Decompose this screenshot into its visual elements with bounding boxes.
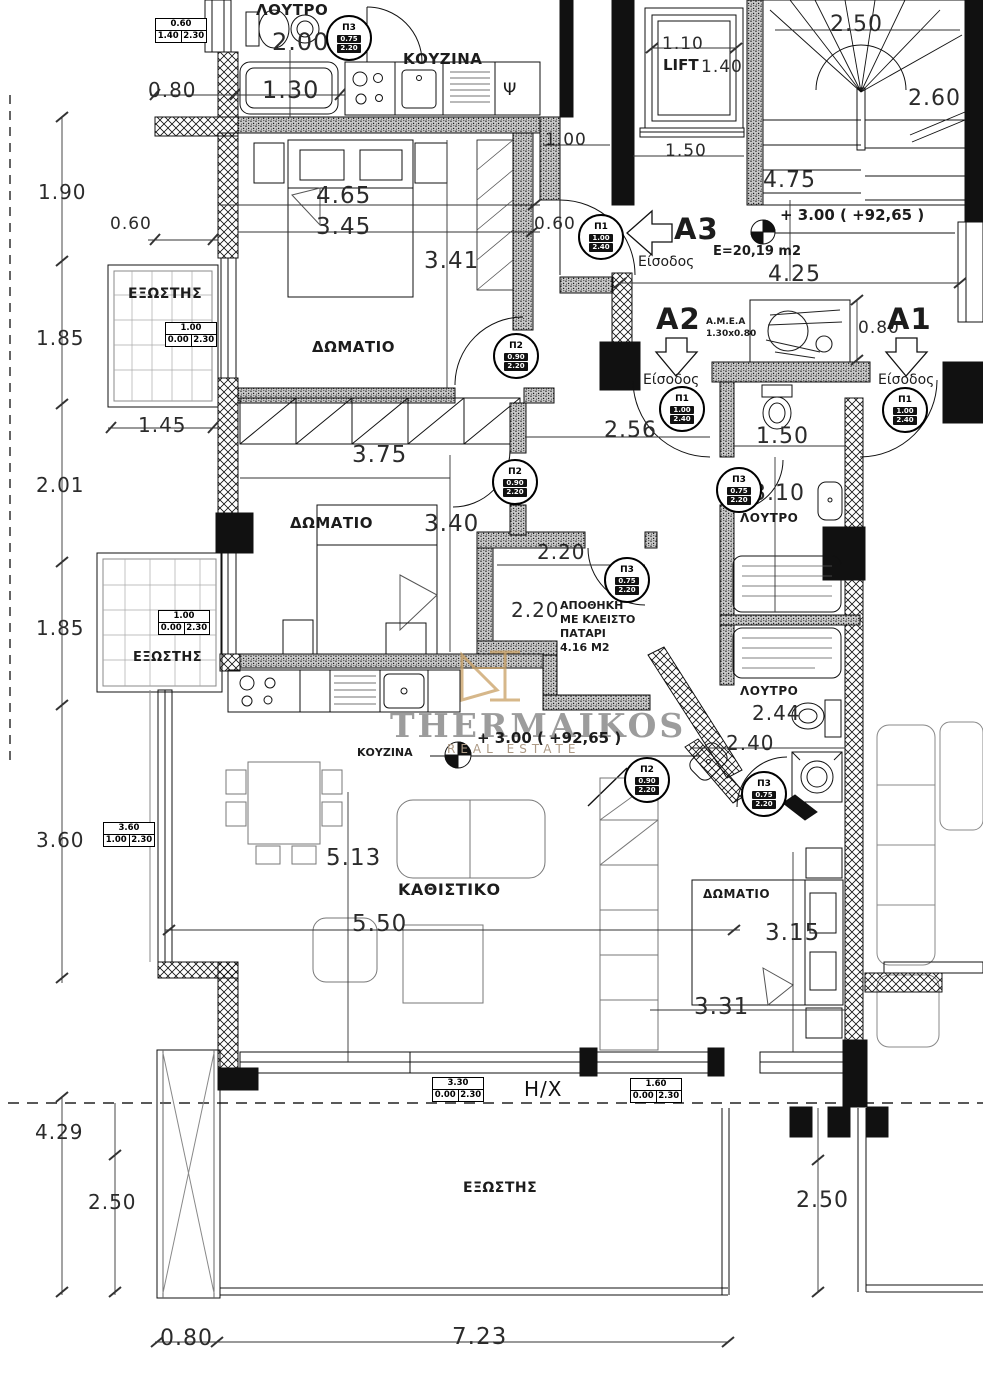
dim-r2-3-40: 3.40 xyxy=(424,511,479,537)
dim-bot-2-50: 2.50 xyxy=(796,1188,849,1213)
amea-label: Α.Μ.Ε.Α xyxy=(706,317,745,328)
door-tag-p1-a3: Π1 1.00 2.40 xyxy=(578,214,624,260)
window-box-living: 3.60 1.002.30 xyxy=(103,822,155,847)
dim-lift-1-50: 1.50 xyxy=(665,141,707,161)
dim-lift-1-40: 1.40 xyxy=(701,57,743,77)
dim-left-1-85a: 1.85 xyxy=(36,326,85,350)
dim-left-2-01: 2.01 xyxy=(36,473,85,497)
dim-bot-0-80: 0.80 xyxy=(160,1326,213,1351)
lift-label: LIFT xyxy=(663,56,699,74)
window-box-balcony-1: 1.00 0.002.30 xyxy=(165,322,217,347)
dim-r1-3-45: 3.45 xyxy=(316,214,371,240)
apartment-a3-label: A3 xyxy=(674,212,719,246)
dim-liv-5-50: 5.50 xyxy=(352,911,407,937)
dim-r1-4-65: 4.65 xyxy=(316,183,371,209)
dim-r1-0-60: 0.60 xyxy=(534,214,576,234)
balcony-2-label: ΕΞΩΣΤΗΣ xyxy=(133,650,202,665)
dim-hall-1-00: 1.00 xyxy=(545,130,587,150)
dim-balc-1-45: 1.45 xyxy=(138,413,187,437)
dim-bath-2-00: 2.00 xyxy=(272,28,329,56)
door-tag-p3-storage: Π3 0.75 2.20 xyxy=(604,557,650,603)
room-label-bath-a2: ΛΟΥΤΡΟ xyxy=(740,511,798,525)
door-tag-p3-bath-a2: Π3 0.75 2.20 xyxy=(716,467,762,513)
door-tag-p2-bedroom-3: Π2 0.90 2.20 xyxy=(624,757,670,803)
dim-r1-3-41: 3.41 xyxy=(424,248,479,274)
hx-label: Η/Χ xyxy=(524,1077,562,1101)
door-tag-p2-bedroom-2: Π2 0.90 2.20 xyxy=(492,459,538,505)
amea-size: 1.30x0.80 xyxy=(706,329,756,340)
dim-bath2-2-44: 2.44 xyxy=(752,701,801,725)
dim-r2-3-75: 3.75 xyxy=(352,442,407,468)
dim-left-2-50: 2.50 xyxy=(88,1190,137,1214)
room-label-bedroom-1: ΔΩΜΑΤΙΟ xyxy=(312,338,395,356)
window-box-bottom-2: 1.60 0.002.30 xyxy=(630,1078,682,1103)
window-box-balcony-2: 1.00 0.002.30 xyxy=(158,610,210,635)
dim-st-2-20a: 2.20 xyxy=(537,540,586,564)
dim-st-2-20b: 2.20 xyxy=(511,598,560,622)
dim-stairs-2-50: 2.50 xyxy=(830,12,883,37)
door-tag-p2-bedroom-1: Π2 0.90 2.20 xyxy=(493,333,539,379)
dim-br-3-31: 3.31 xyxy=(694,994,749,1020)
dim-left-3-60: 3.60 xyxy=(36,828,85,852)
dim-left-1-90: 1.90 xyxy=(38,180,87,204)
storage-label-2: ΜΕ ΚΛΕΙΣΤΟ xyxy=(560,613,635,627)
level-note-hall: + 3.00 ( +92,65 ) xyxy=(780,206,924,224)
balcony-3-label: ΕΞΩΣΤΗΣ xyxy=(463,1180,537,1196)
window-box-top: 0.60 1.402.30 xyxy=(155,18,207,43)
dim-top-0-80: 0.80 xyxy=(148,78,197,102)
dim-hall-4-25: 4.25 xyxy=(768,262,821,287)
dim-bath-1-30: 1.30 xyxy=(262,76,319,104)
apartment-a2-label: A2 xyxy=(656,302,701,336)
storage-area: 4.16 Μ2 xyxy=(560,641,610,655)
apartment-a3-area: E=20,19 m2 xyxy=(713,244,801,259)
floor-plan: ΛΟΥΤΡΟ 2.00 0.80 1.30 ΚΟΥΖΙΝΑ Ψ 1.00 1.1… xyxy=(0,0,983,1399)
apartment-a3-entrance: Είσοδος xyxy=(638,254,694,270)
dim-left-1-85b: 1.85 xyxy=(36,616,85,640)
dim-stairs-2-60: 2.60 xyxy=(908,86,961,111)
dim-br-3-15: 3.15 xyxy=(765,920,820,946)
psi-symbol: Ψ xyxy=(503,80,516,100)
balcony-1-label: ΕΞΩΣΤΗΣ xyxy=(128,286,202,302)
dim-bath-1-50: 1.50 xyxy=(756,424,809,449)
room-label-living: ΚΑΘΙΣΤΙΚΟ xyxy=(398,880,501,899)
door-tag-p3-bath-a1: Π3 0.75 2.20 xyxy=(741,771,787,817)
dim-liv-5-13: 5.13 xyxy=(326,845,381,871)
room-label-bedroom-3: ΔΩΜΑΤΙΟ xyxy=(703,887,770,901)
apartment-a2-entrance: Είσοδος xyxy=(643,372,699,388)
apartment-a1-entrance: Είσοδος xyxy=(878,372,934,388)
room-label-bath-a1: ΛΟΥΤΡΟ xyxy=(740,684,798,698)
storage-label-1: ΑΠΟΘΗΚΗ xyxy=(560,599,623,613)
dim-bot-7-23: 7.23 xyxy=(452,1324,507,1350)
door-tag-p1-a1: Π1 1.00 2.40 xyxy=(882,387,928,433)
door-tag-p3-bath-top: Π3 0.75 2.20 xyxy=(326,15,372,61)
window-box-bottom-1: 3.30 0.002.30 xyxy=(432,1077,484,1102)
storage-label-3: ΠΑΤΑΡΙ xyxy=(560,627,606,641)
dim-left-0-60: 0.60 xyxy=(110,214,152,234)
door-tag-p1-a2: Π1 1.00 2.40 xyxy=(659,386,705,432)
apartment-a1-label: A1 xyxy=(887,302,932,336)
dim-hall-2-56: 2.56 xyxy=(604,418,657,443)
dim-left-4-29: 4.29 xyxy=(35,1120,84,1144)
room-label-bedroom-2: ΔΩΜΑΤΙΟ xyxy=(290,514,373,532)
dim-bath2-2-40: 2.40 xyxy=(726,731,775,755)
dim-lift-1-10: 1.10 xyxy=(662,34,704,54)
room-label-kitchen: ΚΟΥΖΙΝΑ xyxy=(357,746,413,760)
room-label-kitchen-top: ΚΟΥΖΙΝΑ xyxy=(403,50,482,68)
dim-stairs-4-75: 4.75 xyxy=(763,168,816,193)
level-note-kitchen: + 3.00 ( +92,65 ) xyxy=(477,729,621,747)
room-label-bath-top: ΛΟΥΤΡΟ xyxy=(256,1,328,19)
